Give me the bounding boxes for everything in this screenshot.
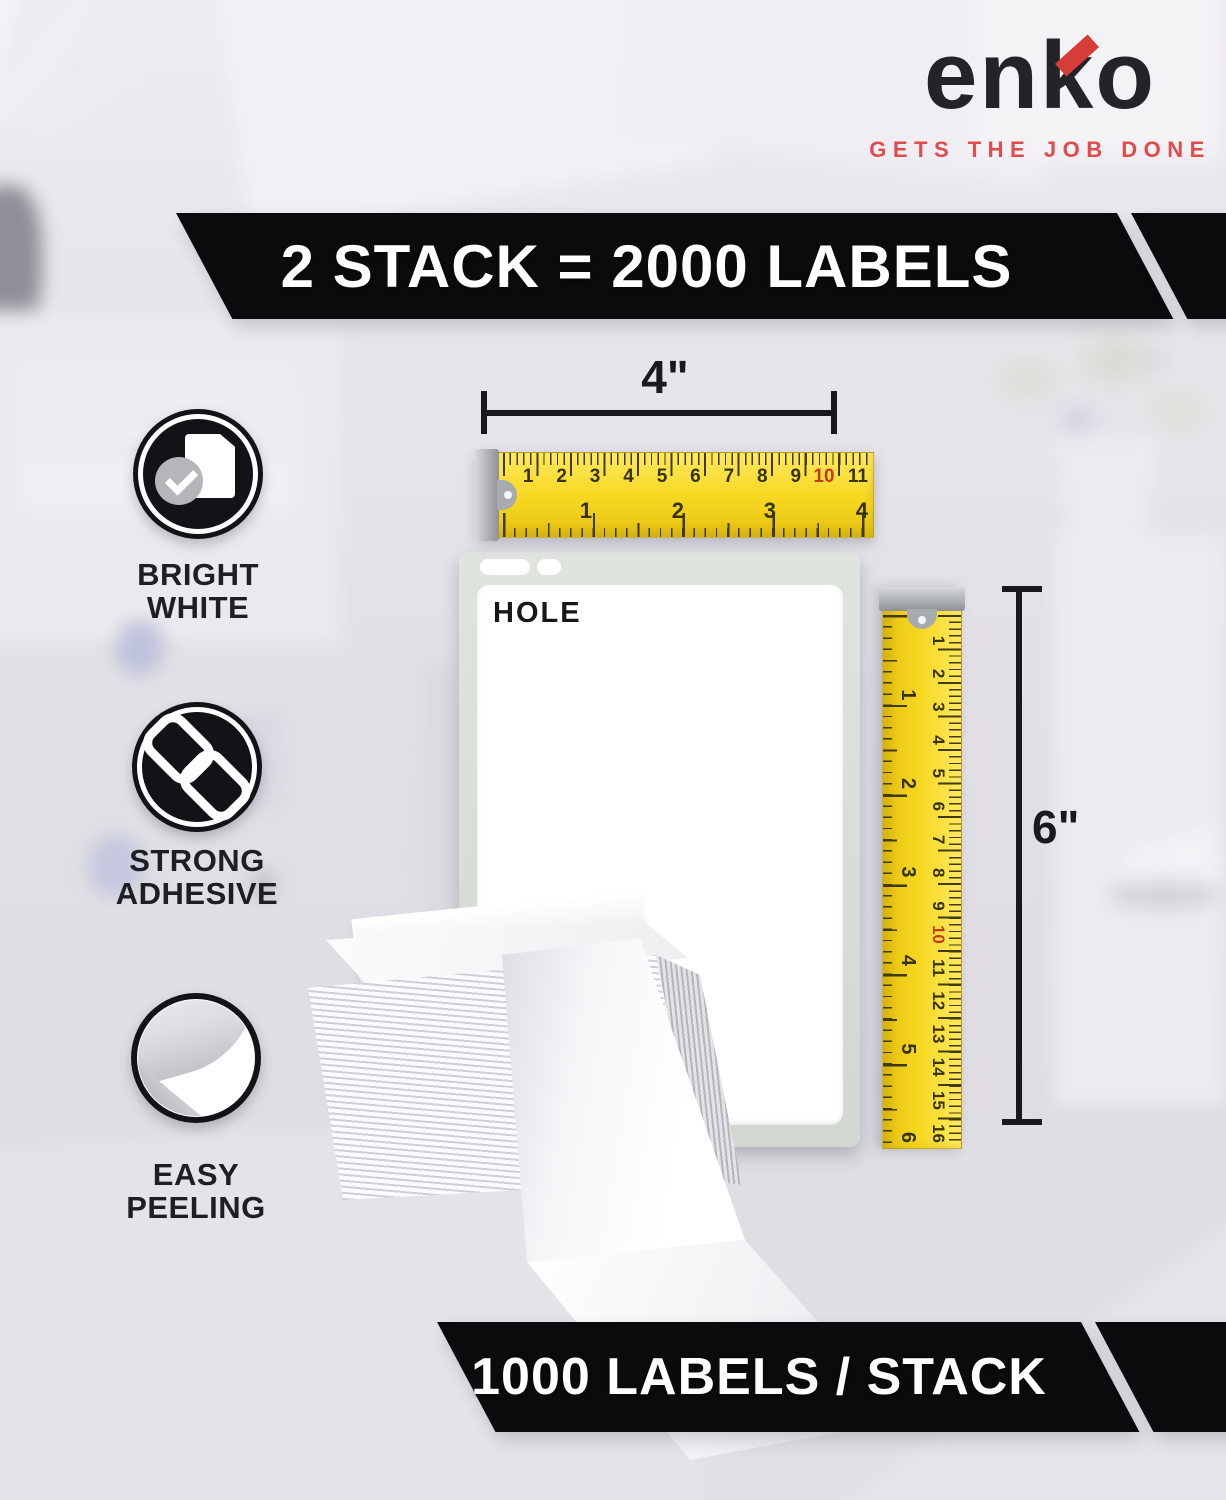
top-ribbon-text: 2 STACK = 2000 LABELS: [176, 213, 1117, 319]
cm-number: 4: [603, 466, 636, 488]
cm-number: 10: [804, 466, 837, 488]
inch-number: 4: [896, 881, 919, 970]
brand-wordmark: enko: [850, 26, 1226, 127]
horizontal-tape-ruler: 1234567891011 1234: [476, 452, 874, 538]
cm-number: 6: [670, 466, 703, 488]
cm-number: 16: [928, 1113, 948, 1146]
inch-number: 4: [779, 498, 871, 524]
feature-label-bright-white: BRIGHT WHITE: [88, 558, 308, 624]
bottom-ribbon-text: 1000 LABELS / STACK: [437, 1322, 1081, 1432]
cm-number: 13: [928, 1013, 948, 1046]
hole-label: HOLE: [493, 597, 582, 630]
feature-label-easy-peeling: EASY PEELING: [86, 1158, 306, 1224]
inch-number: 3: [896, 792, 919, 881]
inch-number: 3: [687, 498, 779, 524]
vertical-tape-ruler: 12345678910111213141516 123456: [884, 588, 962, 1147]
width-dimension-line: [483, 410, 835, 416]
perforation-hole: [537, 559, 561, 575]
chain-link-icon: [132, 702, 262, 832]
cm-number: 3: [570, 466, 603, 488]
cm-number: 11: [838, 466, 871, 488]
brand-letters-en: en: [924, 22, 1040, 129]
inch-number: 5: [896, 969, 919, 1058]
top-ribbon: 2 STACK = 2000 LABELS: [176, 213, 1173, 319]
document-check-icon: [133, 409, 263, 539]
cm-numbers: 1234567891011: [503, 466, 871, 488]
cm-number: 10: [928, 914, 948, 947]
brand-tagline: GETS THE JOB DONE: [850, 137, 1226, 163]
cm-number: 2: [536, 466, 569, 488]
cm-number: 2: [928, 648, 948, 681]
height-dimension-cap-top: [1002, 586, 1042, 592]
brand-letter-k: k: [1040, 26, 1095, 127]
product-ad-canvas: enko GETS THE JOB DONE HOLE 4" 6" 123456…: [0, 0, 1226, 1500]
peel-glyph: [138, 1000, 254, 1116]
width-dimension-cap-right: [831, 391, 837, 434]
bottom-ribbon: 1000 LABELS / STACK: [437, 1322, 1139, 1432]
cm-number: 3: [928, 681, 948, 714]
perforation-hole: [480, 559, 530, 575]
cm-number: 15: [928, 1080, 948, 1113]
checkmark-glyph: [155, 457, 203, 505]
cm-number: 6: [928, 781, 948, 814]
cm-number: 12: [928, 980, 948, 1013]
width-dimension-label: 4": [620, 350, 710, 404]
cm-number: 7: [928, 814, 948, 847]
cm-number: 14: [928, 1046, 948, 1079]
inch-number: 2: [595, 498, 687, 524]
width-dimension-cap-left: [481, 391, 487, 434]
inch-numbers: 1234: [503, 498, 871, 524]
inch-number: 6: [896, 1058, 919, 1147]
ruler-metal-clip: [879, 587, 965, 611]
height-dimension-label: 6": [1032, 800, 1079, 854]
ruler-metal-clip: [475, 449, 499, 541]
peeling-label-icon: [131, 993, 261, 1123]
height-dimension-cap-bottom: [1002, 1119, 1042, 1125]
cm-number: 9: [771, 466, 804, 488]
cm-number: 8: [928, 847, 948, 880]
cm-number: 9: [928, 881, 948, 914]
brand-letter-o: o: [1095, 22, 1156, 129]
cm-number: 5: [637, 466, 670, 488]
cm-number: 4: [928, 715, 948, 748]
inch-numbers: 123456: [896, 615, 919, 1146]
inch-number: 1: [503, 498, 595, 524]
inch-number: 2: [896, 704, 919, 793]
cm-number: 8: [737, 466, 770, 488]
feature-label-strong-adhesive: STRONG ADHESIVE: [87, 844, 307, 910]
cm-number: 11: [928, 947, 948, 980]
inch-number: 1: [896, 615, 919, 704]
cm-numbers: 12345678910111213141516: [928, 615, 948, 1146]
height-dimension-line: [1016, 590, 1022, 1120]
cm-number: 5: [928, 748, 948, 781]
brand-logo: enko GETS THE JOB DONE: [850, 26, 1226, 163]
cm-number: 7: [704, 466, 737, 488]
